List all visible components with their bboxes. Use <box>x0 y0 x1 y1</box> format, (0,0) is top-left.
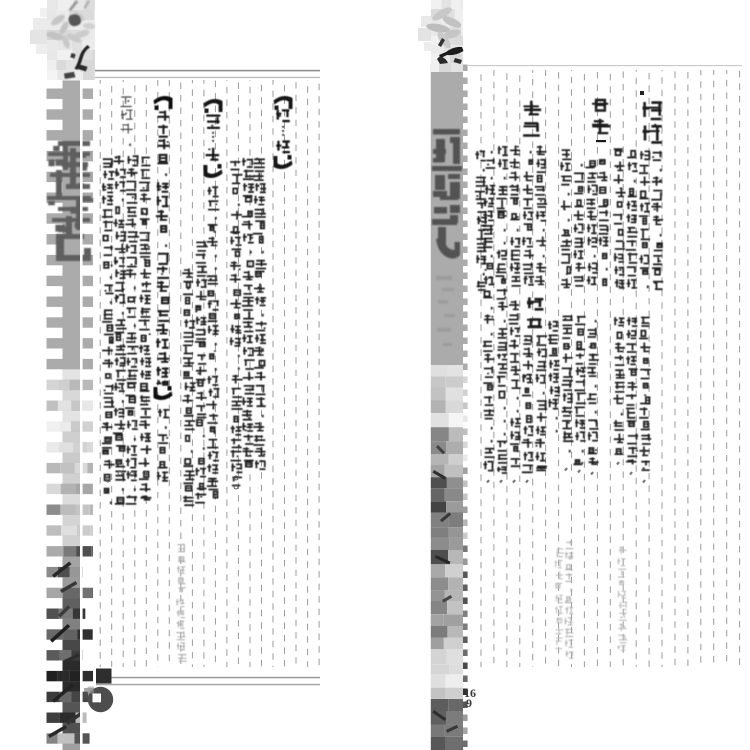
svg-text:9: 9 <box>466 696 472 710</box>
